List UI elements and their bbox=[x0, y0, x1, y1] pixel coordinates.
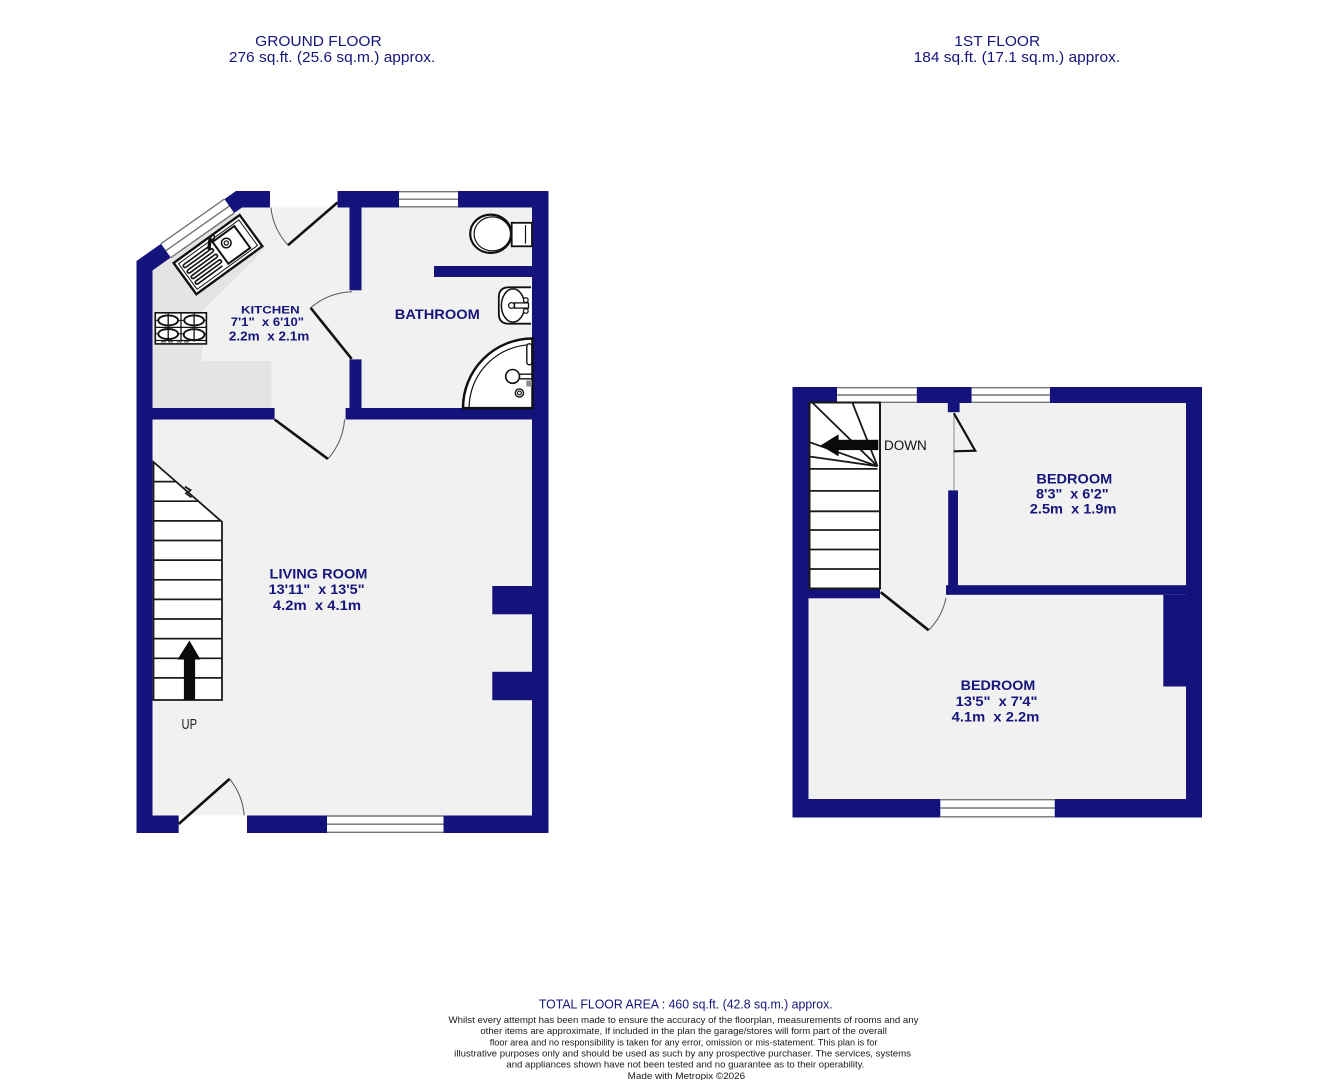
svg-text:and appliances shown have not: and appliances shown have not been teste… bbox=[506, 1060, 864, 1071]
svg-text:LIVING ROOM: LIVING ROOM bbox=[270, 565, 368, 581]
svg-text:UP: UP bbox=[182, 716, 198, 733]
svg-text:BEDROOM: BEDROOM bbox=[961, 677, 1036, 693]
svg-text:Whilst every attempt has been: Whilst every attempt has been made to en… bbox=[449, 1015, 919, 1026]
svg-text:GROUND FLOOR: GROUND FLOOR bbox=[255, 34, 382, 50]
svg-text:DOWN: DOWN bbox=[884, 438, 927, 453]
svg-text:BEDROOM: BEDROOM bbox=[1036, 471, 1112, 487]
svg-text:7'1" x 6'10": 7'1" x 6'10" bbox=[231, 315, 304, 329]
svg-text:13'5" x 7'4": 13'5" x 7'4" bbox=[956, 693, 1038, 709]
svg-text:BATHROOM: BATHROOM bbox=[395, 306, 480, 322]
svg-text:floor area and no responsibili: floor area and no responsibility is take… bbox=[490, 1037, 878, 1048]
svg-text:1ST FLOOR: 1ST FLOOR bbox=[954, 34, 1040, 50]
svg-text:8'3" x 6'2": 8'3" x 6'2" bbox=[1036, 485, 1109, 501]
svg-text:13'11" x 13'5": 13'11" x 13'5" bbox=[269, 581, 365, 597]
svg-text:4.2m x 4.1m: 4.2m x 4.1m bbox=[273, 597, 361, 613]
svg-text:other items are approximate, I: other items are approximate, If included… bbox=[480, 1026, 887, 1037]
svg-text:2.5m x 1.9m: 2.5m x 1.9m bbox=[1030, 501, 1117, 517]
svg-text:276 sq.ft. (25.6 sq.m.) approx: 276 sq.ft. (25.6 sq.m.) approx. bbox=[229, 50, 436, 66]
svg-text:184 sq.ft. (17.1 sq.m.) approx: 184 sq.ft. (17.1 sq.m.) approx. bbox=[914, 50, 1121, 66]
svg-text:illustrative purposes only and: illustrative purposes only and should be… bbox=[454, 1049, 911, 1060]
svg-text:2.2m x 2.1m: 2.2m x 2.1m bbox=[229, 330, 309, 344]
svg-text:4.1m x 2.2m: 4.1m x 2.2m bbox=[952, 709, 1040, 725]
svg-text:TOTAL FLOOR AREA : 460 sq.ft.: TOTAL FLOOR AREA : 460 sq.ft. (42.8 sq.m… bbox=[539, 997, 833, 1012]
svg-text:Made with Metropix ©2026: Made with Metropix ©2026 bbox=[628, 1071, 746, 1080]
